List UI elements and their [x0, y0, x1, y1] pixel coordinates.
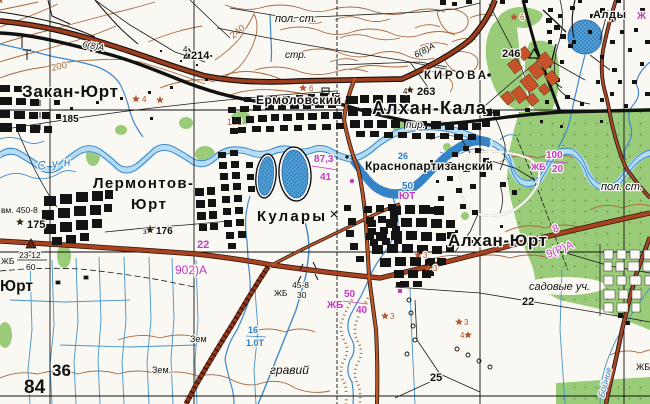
svg-text:ЖБ: ЖБ — [326, 300, 343, 311]
svg-text:41: 41 — [320, 172, 332, 183]
svg-text:4: 4 — [403, 87, 408, 96]
svg-text:Ж: Ж — [636, 11, 647, 22]
svg-text:6: 6 — [520, 13, 525, 22]
svg-text:ЖБ: ЖБ — [636, 362, 650, 372]
svg-text:Зем.: Зем. — [152, 365, 171, 375]
svg-text:4: 4 — [142, 95, 147, 104]
svg-text:30: 30 — [297, 290, 307, 300]
svg-text:ЖБ: ЖБ — [530, 162, 546, 172]
svg-text:84: 84 — [24, 377, 46, 398]
svg-text:36: 36 — [52, 361, 71, 380]
svg-text:50: 50 — [344, 289, 356, 300]
svg-text:ЮТ: ЮТ — [399, 191, 415, 202]
svg-text:40: 40 — [356, 305, 368, 316]
svg-text:3: 3 — [464, 318, 469, 327]
svg-text:Зем: Зем — [190, 334, 207, 344]
svg-text:60: 60 — [26, 262, 36, 272]
svg-text:Алды: Алды — [593, 9, 626, 21]
svg-text:пол. ст.: пол. ст. — [601, 181, 643, 193]
svg-text:гравий: гравий — [270, 363, 309, 377]
svg-text:4: 4 — [460, 331, 465, 340]
svg-text:25: 25 — [430, 372, 442, 384]
svg-text:3: 3 — [423, 251, 428, 260]
svg-text:26: 26 — [398, 151, 408, 161]
svg-text:100: 100 — [546, 150, 563, 161]
svg-text:Ермоловский: Ермоловский — [256, 93, 341, 107]
svg-text:1.0Т: 1.0Т — [246, 338, 265, 348]
svg-text:175: 175 — [27, 219, 45, 231]
svg-text:Лермонтов-: Лермонтов- — [93, 175, 193, 192]
svg-text:22: 22 — [522, 296, 534, 308]
svg-text:50: 50 — [402, 181, 414, 192]
svg-text:22: 22 — [197, 239, 209, 251]
svg-text:902)А: 902)А — [175, 263, 207, 277]
svg-text:20: 20 — [552, 164, 564, 175]
svg-text:45-8: 45-8 — [292, 280, 309, 290]
svg-text:Юрт: Юрт — [0, 278, 33, 295]
svg-text:вм. 450-8: вм. 450-8 — [1, 205, 38, 215]
svg-text:пол. ст.: пол. ст. — [275, 13, 317, 25]
svg-text:з: з — [143, 227, 147, 236]
svg-text:Краснопартизанский: Краснопартизанский — [365, 159, 493, 173]
svg-text:3: 3 — [433, 264, 438, 273]
svg-text:стр.: стр. — [285, 50, 307, 61]
svg-text:23-12: 23-12 — [19, 250, 41, 260]
svg-text:16: 16 — [248, 325, 258, 335]
svg-text:87,3: 87,3 — [314, 154, 334, 165]
svg-text:Алхан-Юрт: Алхан-Юрт — [448, 231, 547, 250]
svg-text:ЖБ: ЖБ — [1, 256, 15, 266]
svg-text:4: 4 — [183, 45, 188, 54]
svg-text:263: 263 — [417, 86, 435, 98]
svg-text:Алхан-Кала: Алхан-Кала — [372, 98, 487, 118]
svg-text:185: 185 — [62, 114, 79, 125]
svg-text:ЖБ: ЖБ — [274, 288, 288, 298]
svg-text:пир.: пир. — [406, 120, 425, 131]
svg-text:3: 3 — [390, 312, 395, 321]
svg-text:Закан-Юрт: Закан-Юрт — [22, 82, 118, 101]
svg-text:214: 214 — [191, 50, 210, 62]
svg-text:6: 6 — [309, 84, 314, 93]
svg-text:садовые уч.: садовые уч. — [529, 281, 590, 293]
svg-text:Юрт: Юрт — [131, 196, 166, 213]
svg-text:246: 246 — [502, 48, 520, 60]
svg-text:176: 176 — [156, 226, 173, 237]
